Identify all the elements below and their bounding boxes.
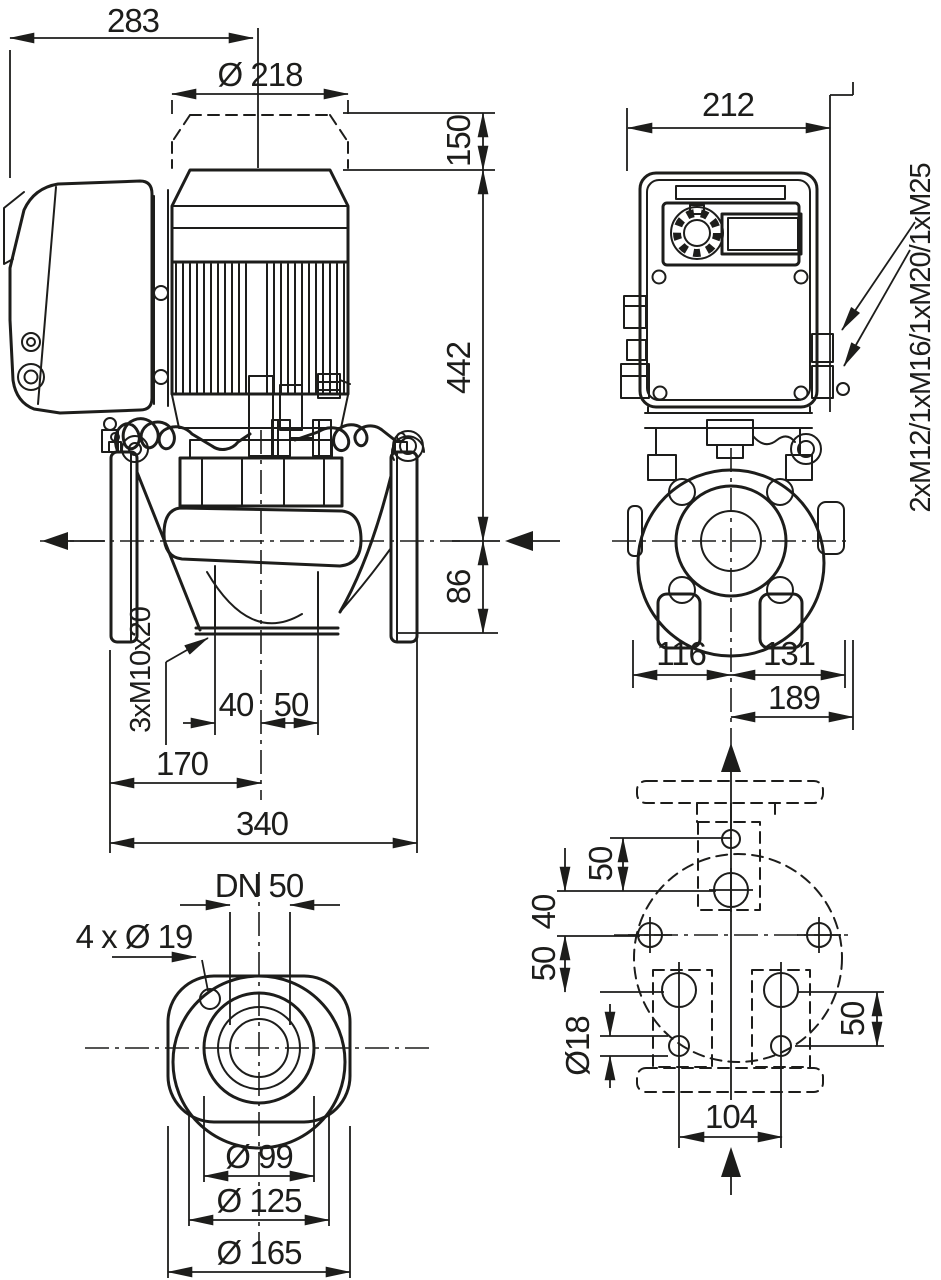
cable-gland-small-icon: [22, 333, 40, 351]
screw-icon: [795, 271, 808, 284]
discharge-flange: [391, 452, 417, 642]
dim-height-above-axis: 442: [440, 342, 477, 394]
screw-icon: [795, 387, 808, 400]
dim-foot-hole-offset-left: 40: [219, 686, 254, 723]
dim-hole-row-right: 50: [834, 1001, 871, 1036]
dim-foot-hole-spacing: 104: [705, 1098, 758, 1135]
cable-coil-icon: [791, 434, 821, 464]
label-nominal-diameter: DN 50: [215, 867, 304, 904]
bolt-hole: [767, 577, 793, 603]
pump-dimensional-drawing: 283 Ø 218 150 442 86 3xM10x20 40 50 170: [0, 0, 941, 1280]
label-cable-glands: 2xM12/1xM16/1xM20/1xM25: [905, 163, 937, 512]
volute: [164, 508, 361, 566]
motor-side: [172, 170, 350, 458]
display: [722, 214, 801, 254]
dim-axis-to-right: 131: [763, 635, 815, 672]
dim-flange-outer-diameter: Ø 165: [217, 1234, 302, 1271]
dim-hole-row-mid: 40: [525, 894, 562, 929]
electronic-module-front: [621, 173, 849, 407]
flange-footprint-bottom: [637, 1068, 823, 1092]
dim-motor-diameter: Ø 218: [218, 56, 303, 93]
dim-height-below-axis: 86: [440, 570, 477, 605]
flow-arrow-up-top: [721, 743, 741, 772]
dim-suction-face-to-axis: 170: [156, 745, 209, 782]
dim-base-hole-diameter: Ø18: [559, 1016, 596, 1075]
dim-overall-width: 283: [107, 2, 159, 39]
flow-arrow-left: [42, 532, 68, 550]
dim-axis-to-module-edge: 189: [768, 679, 820, 716]
flange-view: DN 50 4 x Ø 19 Ø 99 Ø 125 Ø 165: [76, 867, 432, 1278]
label-foot-threads: 3xM10x20: [125, 607, 157, 733]
dim-hole-row-low: 50: [525, 946, 562, 981]
terminal-front: [707, 420, 753, 445]
dim-hole-row-top: 50: [582, 846, 619, 881]
dim-flange-to-flange: 340: [236, 805, 289, 842]
dim-foot-hole-offset-right: 50: [274, 686, 309, 723]
dim-bolt-circle-diameter: Ø 125: [217, 1182, 302, 1219]
vent-slot: [676, 186, 785, 199]
bottom-view: 50 40 50 50 Ø18 104: [525, 743, 884, 1195]
flow-arrow-inlet: [505, 531, 533, 551]
dim-axis-to-left: 116: [656, 635, 706, 672]
bolt-hole: [669, 577, 695, 603]
dim-removal-clearance: 150: [440, 114, 477, 167]
motor-removal-clearance: [172, 115, 348, 168]
screw-icon: [654, 387, 667, 400]
screw-icon: [653, 271, 666, 284]
flange-footprint-top: [637, 781, 823, 803]
dim-module-width: 212: [702, 86, 754, 123]
side-view: 283 Ø 218 150 442 86 3xM10x20 40 50 170: [4, 2, 560, 853]
bottom-view-dimensions: 50 40 50 50 Ø18 104: [525, 838, 884, 1195]
electronic-module-side: [4, 181, 168, 413]
label-bolt-holes: 4 x Ø 19: [76, 918, 193, 955]
flow-arrow-up-bottom: [721, 1147, 741, 1177]
dim-raised-face-diameter: Ø 99: [225, 1138, 293, 1175]
front-view: 212 2xM12/1xM16/1xM20/1xM25 116 131 189: [612, 82, 937, 760]
